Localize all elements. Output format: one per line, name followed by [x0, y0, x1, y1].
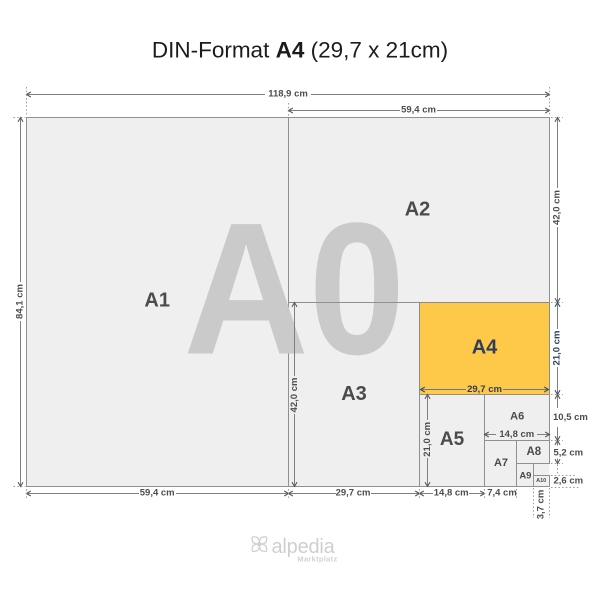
svg-text:14,8 cm: 14,8 cm [434, 488, 469, 499]
svg-text:A5: A5 [440, 429, 465, 450]
svg-text:A8: A8 [526, 446, 541, 458]
svg-text:A10: A10 [536, 478, 546, 484]
svg-text:DIN-Format A4 (29,7 x 21cm): DIN-Format A4 (29,7 x 21cm) [152, 38, 448, 63]
svg-text:A1: A1 [144, 290, 170, 312]
svg-text:21,0 cm: 21,0 cm [552, 331, 563, 366]
svg-text:A2: A2 [405, 199, 431, 221]
svg-text:84,1 cm: 84,1 cm [15, 284, 26, 319]
svg-text:29,7 cm: 29,7 cm [336, 488, 371, 499]
svg-text:A6: A6 [510, 411, 524, 423]
svg-text:42,0 cm: 42,0 cm [289, 378, 300, 413]
svg-text:7,4 cm: 7,4 cm [487, 488, 517, 499]
svg-text:A9: A9 [519, 470, 531, 481]
svg-text:A3: A3 [341, 383, 367, 405]
svg-text:59,4 cm: 59,4 cm [401, 105, 436, 116]
svg-text:21,0 cm: 21,0 cm [422, 422, 433, 457]
svg-text:10,5 cm: 10,5 cm [553, 412, 588, 423]
svg-text:14,8 cm: 14,8 cm [499, 429, 534, 440]
svg-text:A4: A4 [472, 337, 498, 359]
svg-text:3,7 cm: 3,7 cm [536, 490, 547, 520]
svg-text:Marktplatz: Marktplatz [297, 555, 337, 564]
svg-text:59,4 cm: 59,4 cm [140, 488, 175, 499]
svg-text:42,0 cm: 42,0 cm [552, 190, 563, 225]
svg-text:A7: A7 [494, 457, 508, 469]
svg-text:118,9 cm: 118,9 cm [268, 89, 308, 100]
svg-text:5,2 cm: 5,2 cm [554, 448, 584, 459]
svg-text:29,7 cm: 29,7 cm [467, 384, 502, 395]
svg-text:2,6 cm: 2,6 cm [554, 476, 584, 487]
